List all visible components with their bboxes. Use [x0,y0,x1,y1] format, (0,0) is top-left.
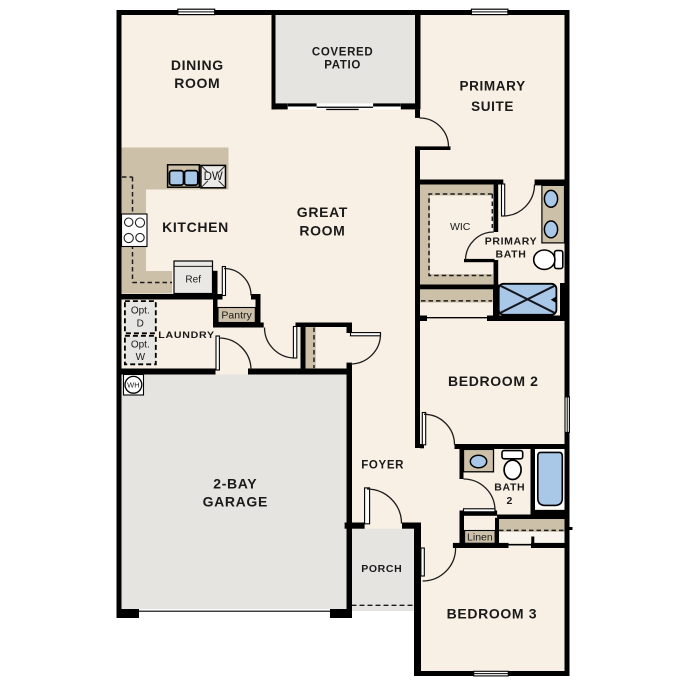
svg-text:COVERED: COVERED [312,46,373,58]
svg-text:BATH: BATH [496,248,527,260]
svg-text:BATH: BATH [494,482,525,494]
svg-text:LAUNDRY: LAUNDRY [158,330,215,341]
svg-text:2: 2 [507,495,514,507]
svg-text:DW: DW [204,171,223,183]
svg-text:Pantry: Pantry [221,310,252,322]
svg-text:Opt.: Opt. [131,339,150,350]
svg-text:GREAT: GREAT [297,204,348,220]
svg-text:BEDROOM 3: BEDROOM 3 [447,606,538,622]
svg-text:2-BAY: 2-BAY [213,476,257,492]
svg-text:PORCH: PORCH [361,563,402,575]
svg-text:PRIMARY: PRIMARY [459,79,525,94]
svg-text:WIC: WIC [450,221,471,233]
svg-text:D: D [137,319,144,330]
svg-text:PATIO: PATIO [324,59,361,71]
svg-text:SUITE: SUITE [471,99,514,114]
svg-text:DINING: DINING [171,57,224,73]
svg-text:Ref: Ref [185,275,201,286]
svg-text:GARAGE: GARAGE [203,494,268,510]
svg-text:ROOM: ROOM [299,223,345,239]
svg-text:WH: WH [127,381,140,390]
svg-text:Opt.: Opt. [131,306,150,317]
svg-text:W: W [136,352,146,363]
svg-text:ROOM: ROOM [174,75,220,91]
svg-text:KITCHEN: KITCHEN [162,219,229,235]
svg-text:Linen: Linen [467,531,493,543]
svg-text:FOYER: FOYER [361,460,404,472]
svg-text:BEDROOM 2: BEDROOM 2 [448,373,539,389]
svg-text:PRIMARY: PRIMARY [485,235,538,247]
